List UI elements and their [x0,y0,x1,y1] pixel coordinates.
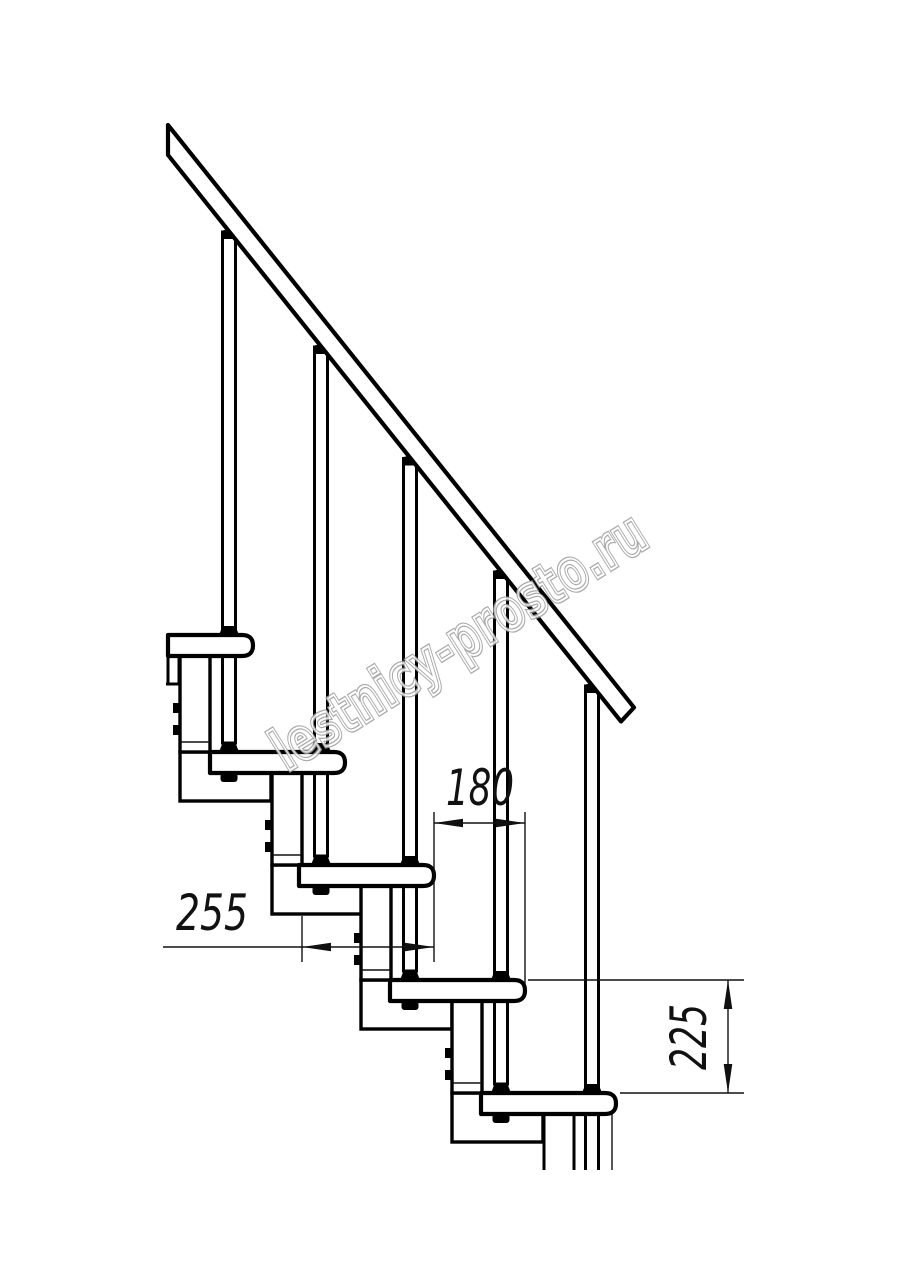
arrow-left-icon [302,943,331,952]
stringer-module-cut-remnant [166,656,179,684]
bolt-tab [354,955,362,965]
bolt-tab [173,725,181,735]
handrail [168,125,634,722]
stringer-module-5-cut [544,1114,612,1170]
bolt-tab [445,1048,453,1058]
bolt-tab [265,842,273,852]
baluster [223,232,236,637]
support-rod [315,771,328,856]
baluster-flange [582,1084,602,1093]
tread-1 [168,635,253,656]
bolt-tab [445,1070,453,1080]
baluster-flange [219,626,239,635]
bolt-tab [173,703,181,713]
dimension-label-255: 255 [176,884,248,942]
screenshot-canvas: 180 255 225 lestnicy-prosto.ru lestnicy-… [0,0,914,1280]
tread-3 [299,865,434,886]
bolt-tab [354,933,362,943]
bolt [493,1114,510,1123]
support-rod [223,654,236,743]
baluster-flange [400,856,420,865]
bolt [402,1001,419,1010]
bolt [313,886,330,895]
tread-5 [481,1093,616,1114]
arrow-left-icon [434,819,463,828]
staircase-technical-drawing: 180 255 225 lestnicy-prosto.ru lestnicy-… [0,0,914,1280]
dimension-rise-225: 225 [528,980,744,1093]
support-flange [491,1084,511,1093]
baluster [586,686,599,1095]
bolt [221,773,238,782]
arrow-down-icon [724,1064,733,1093]
dimension-run-180: 180 [434,759,525,984]
support-flange [311,856,331,865]
arrow-right-icon [405,943,434,952]
arrow-right-icon [496,819,525,828]
support-flange [219,743,239,752]
arrow-up-icon [724,980,733,1009]
bolt-tab [265,820,273,830]
dimension-label-180: 180 [446,759,514,817]
support-rod [495,999,508,1084]
dimension-label-225: 225 [660,1004,718,1070]
baluster-flange [491,971,511,980]
support-flange [400,971,420,980]
support-rod [404,884,417,971]
tread-4 [390,980,525,1001]
support-rod-cut [586,1112,599,1170]
